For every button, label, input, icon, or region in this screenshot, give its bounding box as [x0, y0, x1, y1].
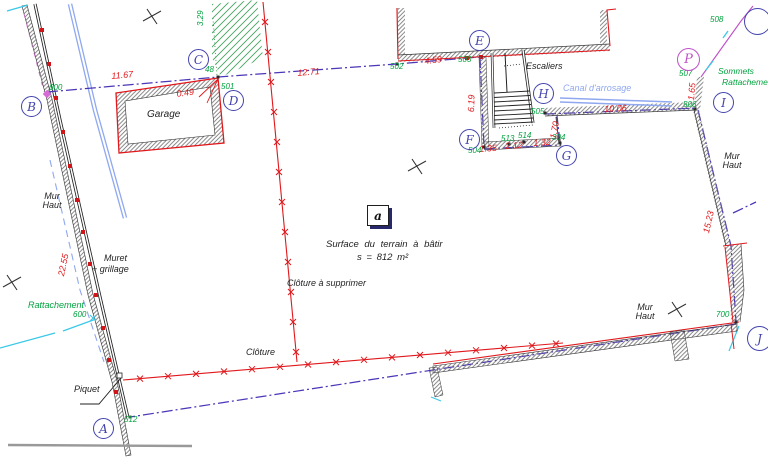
point-304: 304 [552, 134, 565, 142]
escaliers-label: Escaliers [526, 62, 563, 71]
point-700: 700 [716, 311, 729, 319]
mur-haut-west-line2: Haut [30, 201, 74, 210]
parcel-a-letter: a [374, 209, 382, 223]
garage-label: Garage [147, 110, 180, 120]
sommets-line1: Sommets [718, 67, 754, 76]
muret-line1: Muret [104, 254, 127, 263]
fence-vertical [262, 2, 299, 362]
cloture-supprimer-label: Clôture à supprimer [287, 279, 366, 288]
surface-line2: s = 812 m² [357, 253, 408, 263]
measure-e1: 4.59 [424, 55, 442, 66]
point-506: 506 [683, 101, 696, 109]
point-513: 513 [501, 135, 514, 143]
point-508: 508 [710, 16, 723, 24]
circled-point-e: E [469, 30, 490, 51]
measure-green-tie: 3.29 [197, 10, 205, 26]
muret-line2: + grillage [92, 265, 129, 274]
cloture-label: Clôture [246, 348, 275, 357]
measure-f1: 1.35 [479, 144, 497, 154]
point-48: 48 [205, 66, 214, 74]
point-512: 512 [124, 416, 137, 424]
mur-haut-east: Mur Haut [712, 152, 752, 170]
circled-point-d: D [223, 90, 244, 111]
point-502: 502 [390, 63, 403, 71]
circled-point-a: A [93, 418, 114, 439]
point-letter-b: B [27, 100, 36, 114]
south-wall [429, 321, 739, 398]
point-503: 503 [458, 56, 471, 64]
mur-haut-south-line2: Haut [625, 312, 665, 321]
circled-point-g: G [556, 145, 577, 166]
canal-label: Canal d'arrosage [563, 84, 631, 93]
point-507: 507 [679, 70, 692, 78]
point-letter-g: G [562, 149, 572, 163]
point-514: 514 [518, 132, 531, 140]
parcel-a-box: a [367, 205, 389, 226]
point-letter-i: I [721, 96, 726, 110]
circled-station-p: P [677, 48, 700, 71]
point-letter-e: E [475, 34, 484, 48]
measure-ef: 6.19 [467, 94, 477, 112]
point-505: 505 [531, 108, 544, 116]
point-letter-h: H [538, 87, 548, 101]
survey-plan-canvas: 11.67 0.49 12.71 4.59 6.19 1.35 2.12 1.3… [0, 0, 768, 459]
point-letter-d: D [229, 94, 239, 108]
point-letter-a: A [99, 422, 108, 436]
circled-point-top-right [744, 8, 768, 35]
circled-point-j: J [747, 326, 768, 351]
north-building [397, 8, 616, 62]
circled-point-i: I [713, 92, 734, 113]
circled-point-f: F [459, 129, 480, 150]
circled-point-h: H [533, 83, 554, 104]
point-600: 600 [49, 84, 62, 92]
mur-haut-west: Mur Haut [30, 192, 74, 210]
point-letter-j: J [757, 332, 762, 346]
circled-point-c: C [188, 49, 209, 70]
circled-point-b: B [21, 96, 42, 117]
plan-linework [0, 0, 768, 459]
mur-haut-south: Mur Haut [625, 303, 665, 321]
piquet-label: Piquet [74, 385, 100, 394]
green-hatch-area [212, 0, 263, 77]
measure-hi: 10.06 [604, 104, 627, 114]
east-wall [693, 110, 747, 322]
street-baseline [8, 445, 192, 446]
sommets-line2: Rattachement [722, 78, 768, 87]
measure-f3: 1.32 [533, 138, 551, 148]
rattachement-600: 600 [73, 311, 86, 319]
point-letter-p: P [684, 52, 693, 67]
point-letter-f: F [465, 133, 473, 147]
surface-line1: Surface du terrain à bâtir [326, 240, 443, 250]
mur-haut-east-line2: Haut [712, 161, 752, 170]
point-letter-c: C [194, 53, 203, 67]
measure-pi: 1.65 [687, 83, 697, 101]
rattachement-label: Rattachement [28, 301, 84, 310]
measure-bc: 11.67 [111, 70, 134, 81]
